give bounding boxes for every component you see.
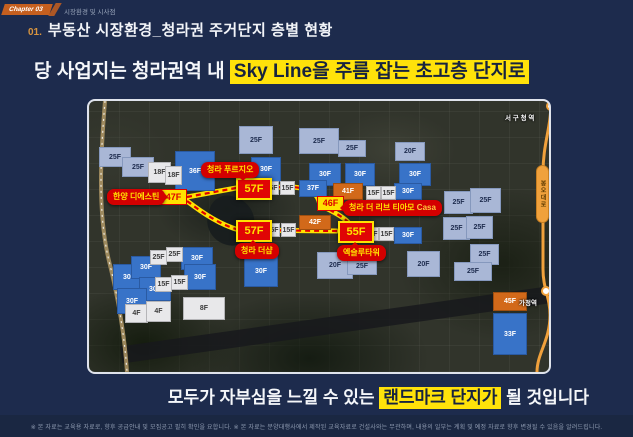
transit-line: [537, 101, 549, 372]
station-marker-seogucheong: [547, 102, 549, 110]
headline-prefix: 당 사업지는 청라권역 내: [34, 61, 230, 82]
map-parcel-15f: 15F: [379, 227, 394, 241]
station-marker-gajeong: [542, 287, 549, 295]
map-parcel-15f: 15F: [280, 181, 295, 195]
map-parcel-25f: 25F: [150, 250, 167, 265]
chapter-badge: Chapter 03: [1, 4, 52, 15]
map-parcel-15f: 15F: [171, 275, 188, 290]
map-parcel-25f: 25F: [454, 262, 492, 281]
map-parcel-42f: 42F: [299, 215, 331, 230]
complex-label: 청라 푸르지오: [201, 162, 259, 178]
page-title: 부동산 시장환경_청라권 주거단지 층별 현황: [48, 19, 333, 40]
map-parcel-15f: 15F: [281, 223, 296, 237]
station-label: 가정역: [519, 297, 537, 307]
footline: 모두가 자부심을 느낄 수 있는 랜드마크 단지가 될 것입니다: [62, 383, 633, 408]
map-parcel-25f: 25F: [239, 126, 273, 154]
complex-label: 한양 디에스틴: [107, 189, 165, 205]
map-parcel-4f: 4F: [125, 304, 148, 323]
map-parcel-15f: 15F: [366, 186, 381, 200]
complex-label: 청라 더 리브 티아모 Casa: [343, 200, 442, 216]
presentation-slide: Chapter 03 시장환경 및 시사점 01. 부동산 시장환경_청라권 주…: [0, 0, 633, 437]
map-parcel-25f: 25F: [444, 191, 473, 214]
headline-highlight: Sky Line을 주름 잡는 초고층 단지로: [230, 60, 530, 84]
map-parcel-25f: 25F: [470, 188, 501, 213]
map-parcel-30f: 30F: [394, 227, 422, 244]
complex-label: 엑슬루타워: [337, 245, 386, 261]
map-parcel-15f: 15F: [381, 186, 396, 200]
footline-prefix: 모두가 자부심을 느낄 수 있는: [168, 388, 379, 407]
complex-label: 청라 더샵: [235, 243, 279, 259]
map-parcel-8f: 8F: [183, 297, 225, 320]
map-parcel-15f: 15F: [155, 277, 172, 292]
footline-highlight: 랜드마크 단지가: [379, 387, 501, 409]
map-parcel-33f: 33F: [493, 313, 527, 355]
map-parcel-30f: 30F: [244, 255, 278, 287]
satellite-map: 25F25F25F25F25F20F25F25F25F25F25F25F20F2…: [87, 99, 551, 374]
canal-road: [101, 101, 127, 372]
footline-suffix: 될 것입니다: [501, 388, 589, 407]
map-parcel-25f: 25F: [299, 128, 339, 154]
map-parcel-25f: 25F: [466, 216, 493, 239]
map-parcel-20f: 20F: [395, 142, 425, 161]
map-parcel-20f: 20F: [407, 251, 440, 277]
station-label: 서 구 청 역: [505, 112, 534, 122]
disclaimer-text: ※ 본 자료는 교육용 자료로, 향후 공급안내 및 모집공고 필히 확인을 요…: [31, 422, 603, 431]
map-parcel-25f: 25F: [166, 247, 183, 262]
road-name-capsule: 봉오대로: [536, 165, 549, 223]
map-parcel-18f: 18F: [165, 166, 182, 185]
map-parcel-30f: 30F: [184, 264, 216, 290]
map-parcel-37f: 37F: [299, 180, 327, 197]
map-parcel-4f: 4F: [146, 301, 171, 322]
map-parcel-25f: 25F: [338, 140, 366, 157]
headline: 당 사업지는 청라권역 내 Sky Line을 주름 잡는 초고층 단지로: [34, 56, 529, 83]
title-row: 01. 부동산 시장환경_청라권 주거단지 층별 현황: [28, 19, 333, 40]
chapter-label: 시장환경 및 시사점: [64, 6, 115, 16]
footer-disclaimer-bar: ※ 본 자료는 교육용 자료로, 향후 공급안내 및 모집공고 필히 확인을 요…: [0, 415, 633, 437]
road-name-label: 봉오대로: [538, 180, 547, 208]
map-parcel-30f: 30F: [394, 183, 422, 200]
section-number: 01.: [28, 27, 42, 38]
